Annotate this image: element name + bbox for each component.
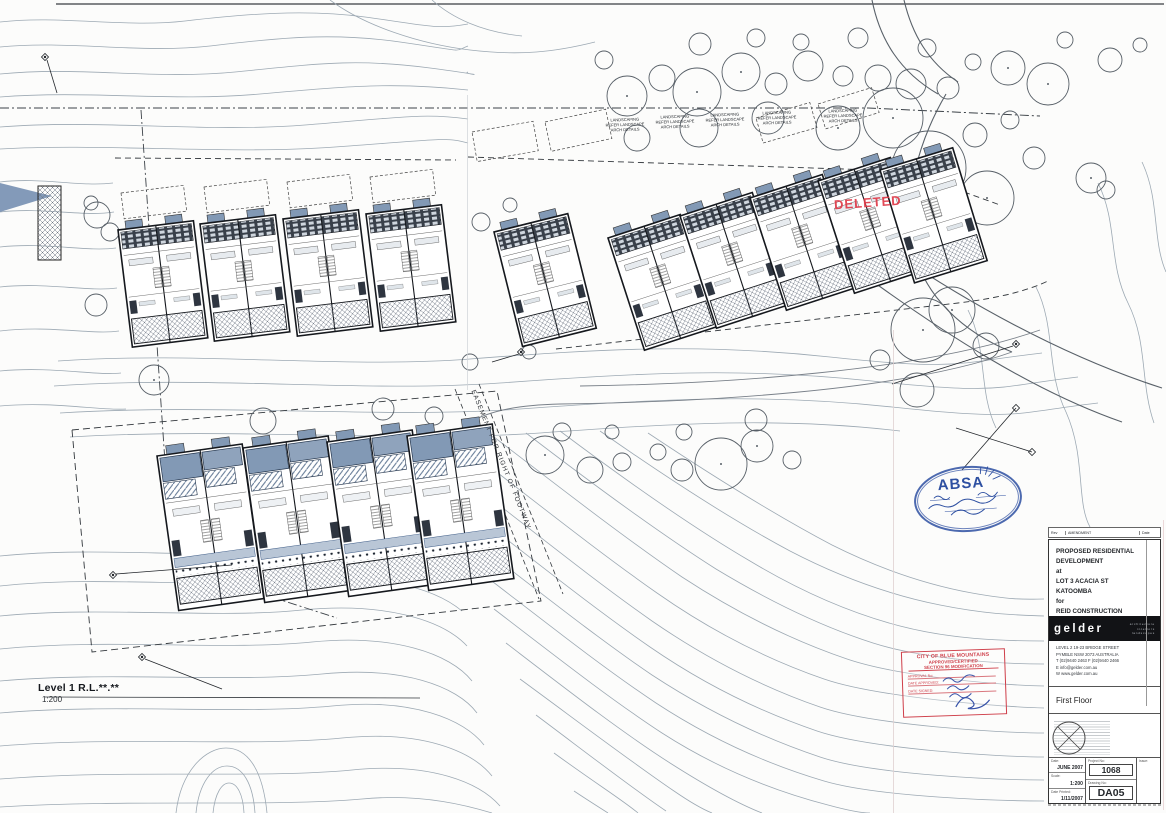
landscape-note: LANDSCAPINGREFER LANDSCAPEARCH DETAILS	[752, 110, 802, 126]
revision-strip: Rev AMENDMENT Date	[1048, 527, 1161, 538]
scan-fold-line	[467, 95, 468, 390]
scale-field: Scale: 1:200	[1049, 773, 1085, 788]
firm-logo-text: gelder	[1054, 623, 1104, 635]
firm-address: LEVEL 2 19-23 BRIDGE STREET PYMBLE NSW 2…	[1049, 641, 1160, 686]
drawing-number-field: Drawing No: DA05	[1086, 780, 1136, 803]
absa-certification-stamp: ABSA	[912, 462, 1024, 535]
scale-label: 1:200	[42, 695, 62, 704]
council-handwriting	[902, 649, 1006, 717]
firm-logo-tags: architecture interiors landscapes	[1130, 622, 1155, 636]
project-number-field: Project No: 1068	[1086, 758, 1136, 780]
sheet-fine-print	[1048, 804, 1161, 806]
title-block-main: PROPOSED RESIDENTIAL DEVELOPMENT at LOT …	[1048, 539, 1161, 804]
date-printed-field: Date Printed: 1/11/2007	[1049, 789, 1085, 803]
dates-column: Date: JUNE 2007 Scale: 1:200 Date Printe…	[1049, 758, 1085, 803]
landscape-note: LANDSCAPINGREFER LANDSCAPEARCH DETAILS	[700, 112, 750, 128]
revision-col-amendment: AMENDMENT	[1066, 531, 1140, 535]
left-structures	[0, 183, 61, 260]
drawing-title: First Floor	[1049, 686, 1160, 713]
numbers-column: Project No: 1068 Drawing No: DA05	[1085, 758, 1136, 803]
title-block-fields: Date: JUNE 2007 Scale: 1:200 Date Printe…	[1049, 757, 1160, 803]
landscape-note: LANDSCAPINGREFER LANDSCAPEARCH DETAILS	[650, 114, 700, 130]
level-label: Level 1 R.L.**.**	[38, 682, 119, 694]
revision-col-rev: Rev	[1049, 531, 1066, 535]
landscape-note: LANDSCAPINGREFER LANDSCAPEARCH DETAILS	[600, 117, 650, 133]
date-field: Date: JUNE 2007	[1049, 758, 1085, 773]
building-duplex	[365, 197, 456, 331]
landscape-note: LANDSCAPINGREFER LANDSCAPEARCH DETAILS	[818, 108, 868, 124]
building-duplex	[282, 202, 373, 336]
title-block-rail	[1146, 540, 1147, 706]
building-duplex	[117, 213, 208, 347]
absa-scribbles	[912, 462, 1024, 535]
council-approval-stamp: CITY OF BLUE MOUNTAINS APPROVED/CERTIFIE…	[901, 648, 1007, 718]
scan-fold-line	[1163, 520, 1164, 810]
title-block: Rev AMENDMENT Date PROPOSED RESIDENTIAL …	[1048, 527, 1161, 804]
site-plan-sheet: Level 1 R.L.**.** 1:200 DELETED EASEMENT…	[0, 0, 1166, 813]
revision-col-date: Date	[1140, 531, 1160, 535]
building-duplex	[492, 206, 596, 347]
notes-section	[1049, 713, 1160, 757]
scan-fold-line	[893, 330, 894, 813]
north-point-icon	[1049, 718, 1089, 758]
issue-column: Issue:	[1136, 758, 1160, 803]
firm-logo-band: gelder architecture interiors landscapes	[1049, 616, 1160, 641]
project-title: PROPOSED RESIDENTIAL DEVELOPMENT at LOT …	[1049, 540, 1160, 616]
building-duplex	[199, 207, 290, 341]
